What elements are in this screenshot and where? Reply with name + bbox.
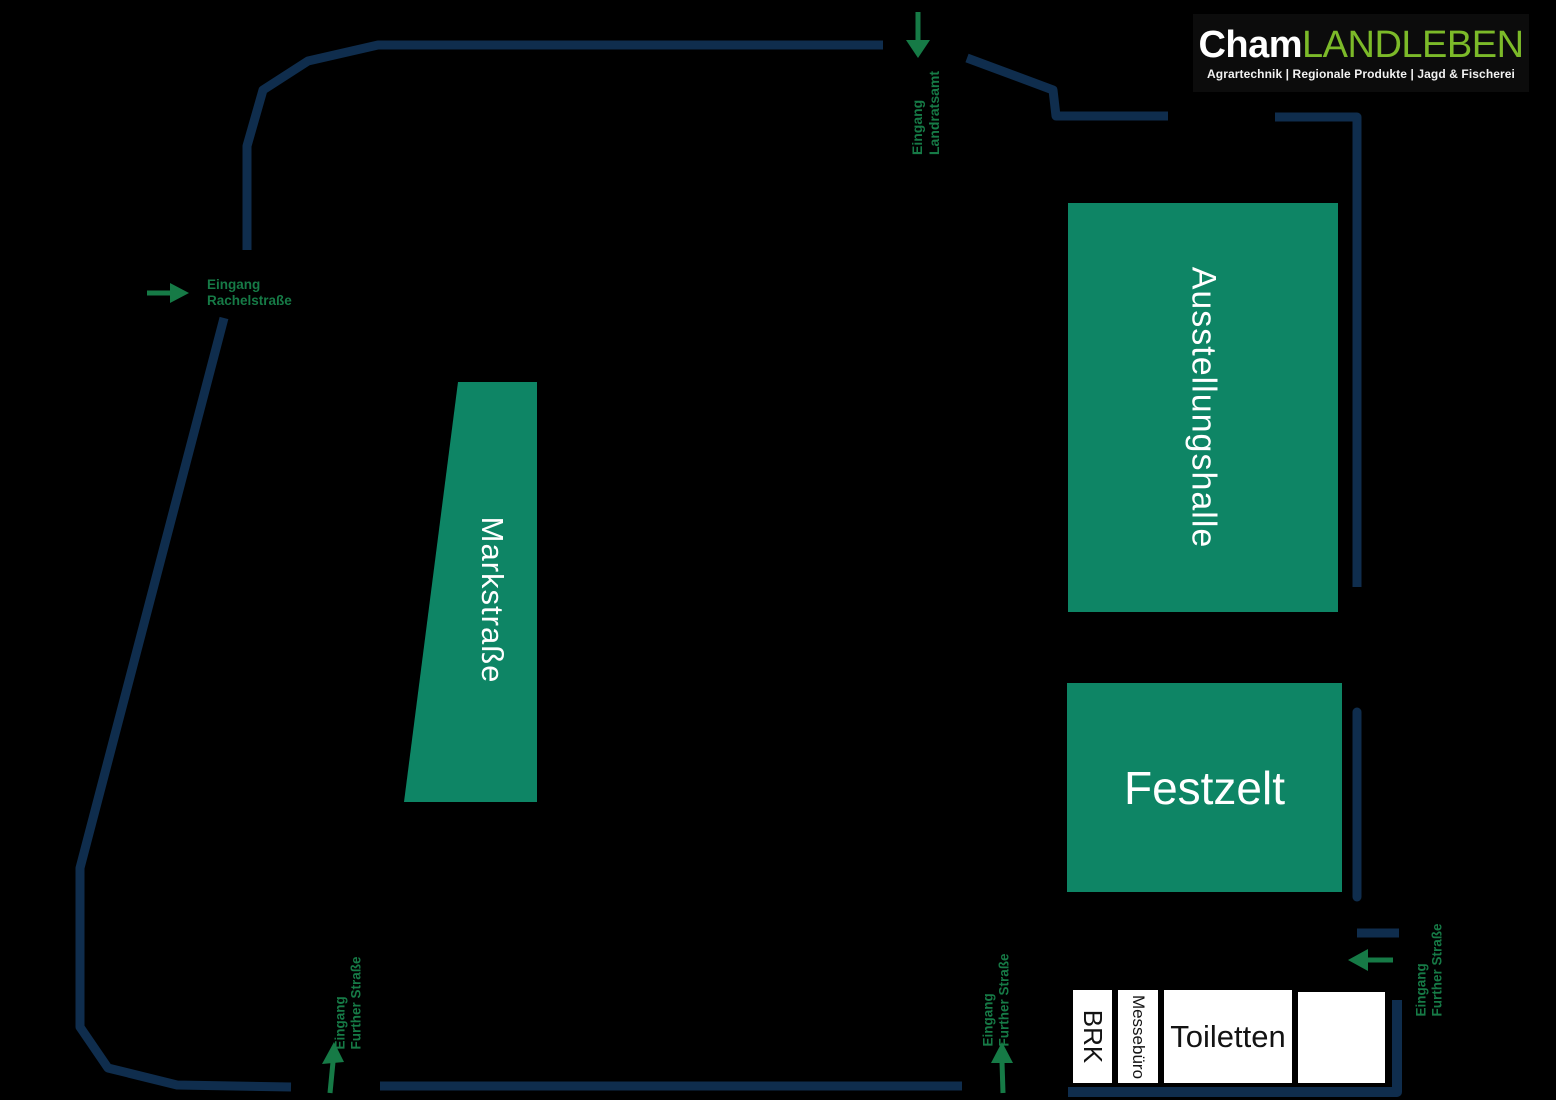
entrance-arrow-landratsamt-icon: [906, 12, 930, 58]
entrance-label-landratsamt: Eingang Landratsamt: [909, 71, 943, 155]
entrance-label-further-strasse-mitte: Eingang Further Straße: [981, 953, 1014, 1046]
entrance-arrow-further-strasse-mitte-icon: [991, 1042, 1013, 1093]
logo-brand: ChamLANDLEBEN: [1198, 26, 1523, 64]
entrance-arrow-rachelstrasse-icon: [147, 283, 189, 303]
entrance-label-rachelstrasse: Eingang Rachelstraße: [207, 277, 292, 310]
ausstellungshalle-building: Ausstellungshalle: [1068, 203, 1338, 612]
entrance-arrow-further-strasse-west-icon: [322, 1042, 344, 1093]
entrance-label-further-strasse-ost: Eingang Further Straße: [1414, 923, 1447, 1016]
toiletten-label: Toiletten: [1170, 1019, 1285, 1055]
messebuero-facility: Messebüro: [1118, 990, 1158, 1083]
boundary-top-right-diagonal: [967, 58, 1168, 116]
fairground-map: Markstraße Ausstellungshalle Festzelt BR…: [0, 0, 1556, 1100]
markstrasse-label: Markstraße: [474, 517, 510, 684]
logo-brand-cham: Cham: [1198, 24, 1302, 66]
brk-facility: BRK: [1073, 990, 1112, 1083]
ausstellungshalle-label: Ausstellungshalle: [1184, 267, 1223, 549]
logo-brand-landleben: LANDLEBEN: [1302, 24, 1523, 66]
unlabeled-facility: [1298, 992, 1385, 1083]
messebuero-label: Messebüro: [1128, 994, 1148, 1078]
brk-label: BRK: [1077, 1010, 1108, 1063]
entrance-label-further-strasse-west: Eingang Further Straße: [333, 956, 366, 1049]
entrance-arrow-further-strasse-ost-icon: [1348, 949, 1393, 971]
toiletten-facility: Toiletten: [1164, 990, 1292, 1083]
boundary-left: [80, 318, 291, 1087]
cham-landleben-logo: ChamLANDLEBEN Agrartechnik | Regionale P…: [1193, 14, 1529, 92]
markstrasse-building-shape: [404, 382, 537, 802]
festzelt-building: Festzelt: [1067, 683, 1342, 892]
boundary-top-left: [247, 45, 883, 250]
logo-tagline: Agrartechnik | Regionale Produkte | Jagd…: [1207, 67, 1515, 81]
festzelt-label: Festzelt: [1124, 761, 1285, 815]
